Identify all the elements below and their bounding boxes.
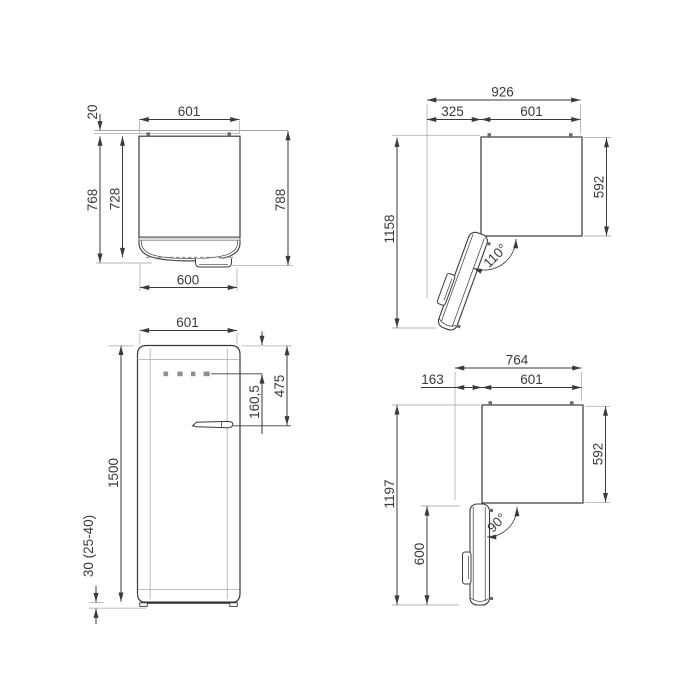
dim-label-door-projection: 163 [421, 372, 444, 387]
dim-label-door-width: 600 [177, 273, 200, 288]
dim-label-cabinet-depth: 592 [591, 443, 606, 466]
cabinet-front [138, 346, 241, 603]
drawing-canvas: 601 20 768 728 788 600 110° 926 [0, 0, 700, 700]
dim-label-cabinet-width: 601 [176, 315, 199, 330]
view-front: 601 1500 160,5 475 30 (25-40) [81, 315, 292, 624]
view-plan-door-open-90: 90° 764 163 601 592 1197 600 [382, 353, 610, 606]
dim-label-overall-width: 926 [491, 85, 514, 100]
dim-label-cabinet-width: 601 [520, 372, 543, 387]
door-curved-front [139, 241, 240, 261]
foot-left [140, 603, 148, 607]
dim-label-depth-total: 768 [85, 189, 100, 212]
dim-label-width-top: 601 [178, 104, 201, 119]
hinge-pin-right [570, 401, 574, 405]
dim-label-controls-offset: 160,5 [247, 385, 262, 419]
dim-label-overall-width: 764 [506, 353, 529, 368]
door-open-90 [463, 504, 494, 605]
hinge-pin-left [489, 401, 493, 405]
dim-label-cabinet-width: 601 [520, 104, 543, 119]
hinge-pin-left [147, 132, 151, 136]
cabinet-top-view [481, 137, 582, 236]
cabinet-top-view [139, 136, 240, 237]
hinge-pin-left [488, 133, 492, 137]
dim-label-depth-overall: 788 [273, 189, 288, 212]
dim-label-cabinet-height: 1500 [106, 458, 121, 488]
technical-dimension-drawing: 601 20 768 728 788 600 110° 926 [0, 0, 700, 700]
dim-label-hinge-gap: 20 [85, 104, 100, 119]
dim-label-depth-body: 728 [108, 188, 123, 211]
dim-label-cabinet-depth: 592 [592, 176, 607, 199]
foot-right [230, 603, 238, 607]
control-icon-2 [177, 372, 182, 377]
view-plan-door-open-110: 110° 926 325 601 592 1158 [382, 85, 611, 334]
view-plan-door-closed: 601 20 768 728 788 600 [85, 104, 293, 291]
door-handle-front [193, 421, 233, 427]
dim-label-total-depth: 1197 [382, 479, 397, 508]
door-gasket-band [139, 237, 240, 240]
door-open-110 [429, 228, 492, 333]
dim-label-total-depth: 1158 [382, 214, 397, 243]
cabinet-top-view [482, 405, 583, 503]
hinge-pin-right [569, 133, 573, 137]
dim-label-feet-height: 30 (25-40) [81, 515, 96, 577]
control-icon-1 [164, 372, 169, 377]
control-icon-3 [191, 372, 195, 377]
dim-label-door-projection: 325 [441, 104, 464, 119]
dim-label-door-depth: 600 [412, 543, 427, 566]
handle-top-view [196, 259, 232, 268]
control-icon-4 [204, 372, 210, 377]
dim-label-handle-offset: 475 [272, 375, 287, 398]
hinge-pin-right [228, 132, 232, 136]
